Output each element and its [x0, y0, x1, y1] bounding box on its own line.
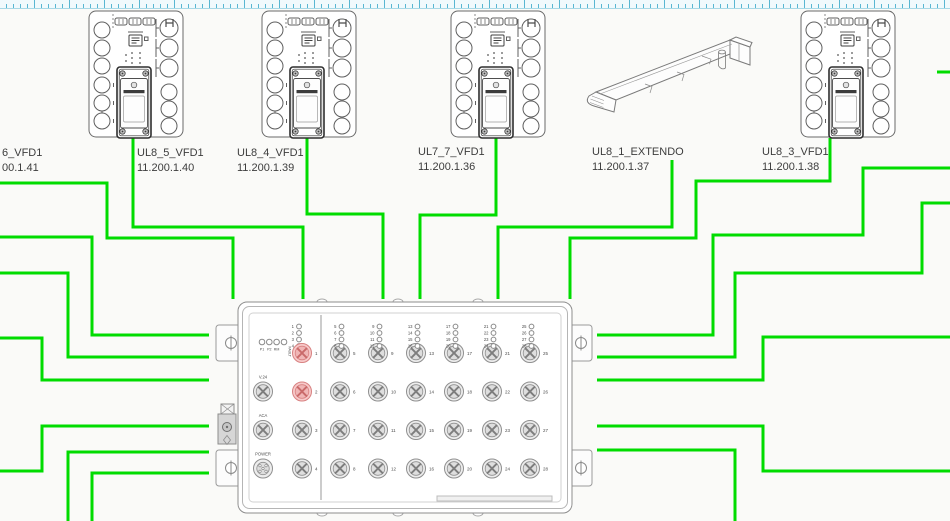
mount-hole [94, 22, 110, 38]
switch-port-18[interactable] [445, 382, 464, 401]
device-dev-ul7-7[interactable] [450, 10, 546, 147]
mount-hole [334, 84, 350, 100]
top-connector [841, 18, 853, 25]
device-ip: 11.200.1.36 [418, 160, 485, 175]
network-wire-8[interactable] [0, 338, 209, 380]
led-number: 12 [370, 344, 375, 349]
port-number: 15 [429, 428, 435, 433]
led-number: 11 [370, 337, 375, 342]
network-wire-16[interactable] [597, 450, 735, 521]
mount-hole [873, 118, 889, 134]
mount-hole [267, 40, 283, 56]
status-led-label: P1 [260, 348, 264, 352]
port-led [529, 344, 534, 349]
mount-hole [806, 113, 822, 129]
port-led [453, 324, 458, 329]
switch-port-12[interactable] [369, 459, 388, 478]
extendo-pin [719, 50, 726, 54]
side-port-label: V.24 [259, 375, 268, 380]
device-dev-ul8-5[interactable] [88, 10, 184, 147]
network-wire-9[interactable] [0, 426, 209, 471]
led-number: 23 [484, 337, 489, 342]
mount-hole [523, 101, 539, 117]
port-led [415, 337, 420, 342]
status-led-P2 [267, 339, 273, 345]
mount-hole [456, 58, 472, 74]
port-number: 12 [391, 466, 397, 471]
top-connector [491, 18, 503, 25]
switch-port-10[interactable] [369, 382, 388, 401]
device-dev-ul8-3[interactable] [800, 10, 896, 147]
device-ip: 11.200.1.40 [137, 161, 204, 176]
mount-hole [94, 40, 110, 56]
mount-hole [523, 118, 539, 134]
switch-port-20[interactable] [445, 459, 464, 478]
port-led [453, 344, 458, 349]
mount-hole [873, 101, 889, 117]
top-ruler [0, 0, 950, 9]
device-name: UL8_1_EXTENDO [592, 145, 684, 160]
device-name: UL8_4_VFD1 [237, 146, 304, 161]
switch-port-1[interactable] [293, 344, 312, 363]
led-number: 24 [484, 344, 489, 349]
device-ip: 11.200.1.38 [762, 160, 829, 175]
mount-hole [456, 77, 472, 93]
port-number: 16 [429, 466, 435, 471]
top-connector [288, 18, 300, 25]
led-number: 26 [522, 331, 527, 336]
port-led [415, 324, 420, 329]
mount-hole [94, 95, 110, 111]
port-number: 26 [543, 389, 549, 394]
switch-port-16[interactable] [407, 459, 426, 478]
switch-port-3[interactable] [293, 421, 312, 440]
top-connector [855, 18, 867, 25]
status-led-label: P2 [267, 348, 271, 352]
switch-port-22[interactable] [483, 382, 502, 401]
device-ip: 11.200.1.39 [237, 161, 304, 176]
module-label-bar [836, 90, 857, 93]
port-number: 17 [467, 351, 473, 356]
device-name: 6_VFD1 [2, 146, 42, 161]
port-led [491, 337, 496, 342]
top-connector [302, 18, 314, 25]
device-label-dev-ul8-3[interactable]: UL8_3_VFD111.200.1.38 [762, 145, 829, 175]
mount-hole [806, 95, 822, 111]
port-number: 28 [543, 466, 549, 471]
switch-port-7[interactable] [331, 421, 350, 440]
brand-logo-icon [131, 82, 137, 88]
network-wire-12[interactable] [597, 168, 950, 335]
port-number: 19 [467, 428, 473, 433]
label-strip [437, 496, 552, 501]
device-name: UL8_5_VFD1 [137, 146, 204, 161]
network-wire-2[interactable] [307, 138, 383, 299]
mount-hole [456, 95, 472, 111]
ruler-major-ticks [0, 0, 950, 8]
port-number: 23 [505, 428, 511, 433]
mount-hole [267, 22, 283, 38]
port-number: 13 [429, 351, 435, 356]
device-ip: 00.1.41 [2, 161, 42, 176]
device-name: UL8_3_VFD1 [762, 145, 829, 160]
module-label-bar [297, 90, 318, 93]
device-dev-ul8-4[interactable] [261, 10, 357, 147]
port-led [339, 337, 344, 342]
mount-hole [267, 77, 283, 93]
port-led [339, 344, 344, 349]
port-led [529, 337, 534, 342]
device-label-dev-cutoff[interactable]: 6_VFD100.1.41 [2, 146, 42, 176]
network-wire-11[interactable] [92, 473, 209, 521]
mount-hole [872, 39, 890, 57]
switch-port-15[interactable] [407, 421, 426, 440]
mount-hole [872, 19, 890, 37]
port-led [339, 324, 344, 329]
module-label-bar [124, 90, 145, 93]
port-led [453, 337, 458, 342]
mount-hole [522, 19, 540, 37]
mount-hole [160, 39, 178, 57]
mount-hole [333, 19, 351, 37]
port-number: 18 [467, 389, 473, 394]
device-label-dev-ul8-5[interactable]: UL8_5_VFD111.200.1.40 [137, 146, 204, 176]
switch-port-28[interactable] [521, 459, 540, 478]
port-led [491, 344, 496, 349]
led-number: 28 [522, 344, 527, 349]
mount-hole [806, 40, 822, 56]
led-number: 14 [408, 331, 413, 336]
led-number: 10 [370, 331, 375, 336]
status-led-FAULT [281, 339, 287, 345]
top-connector [129, 18, 141, 25]
port-led [377, 324, 382, 329]
mount-hole [333, 59, 351, 77]
port-number: 22 [505, 389, 511, 394]
network-wire-6[interactable] [0, 237, 209, 335]
mount-hole [806, 22, 822, 38]
top-connector [827, 18, 839, 25]
device-label-dev-ul7-7[interactable]: UL7_7_VFD111.200.1.36 [418, 145, 485, 175]
mount-hole [94, 113, 110, 129]
switch-port-26[interactable] [521, 382, 540, 401]
switch-port-8[interactable] [331, 459, 350, 478]
led-number: 17 [446, 324, 451, 329]
top-connector [505, 18, 517, 25]
port-led [377, 331, 382, 336]
diagram-canvas: 6_VFD100.1.41UL8_5_VFD111.200.1.40UL8_4_… [0, 0, 950, 521]
port-led [339, 331, 344, 336]
switch-port-24[interactable] [483, 459, 502, 478]
port-number: 11 [391, 428, 396, 433]
status-led-P1 [259, 339, 265, 345]
status-led-label: RM [274, 348, 280, 352]
extendo-top-face [596, 40, 750, 100]
mount-hole [522, 39, 540, 57]
switch-port-19[interactable] [445, 421, 464, 440]
mount-hole [333, 39, 351, 57]
mount-hole [806, 58, 822, 74]
port-led [297, 337, 302, 342]
side-port-label: ACA [259, 413, 268, 418]
device-label-dev-ul8-4[interactable]: UL8_4_VFD111.200.1.39 [237, 146, 304, 176]
port-number: 20 [467, 466, 473, 471]
led-number: 25 [522, 324, 527, 329]
port-led [491, 324, 496, 329]
switch-port-POWER[interactable] [254, 459, 273, 478]
port-number: 14 [429, 389, 435, 394]
top-connector [115, 18, 127, 25]
switch-port-2[interactable] [293, 382, 312, 401]
network-wire-10[interactable] [68, 452, 209, 521]
device-ethernet-switch[interactable]: P1P2RMFAULT12341234V.24ACAPOWER556677889… [212, 296, 596, 521]
mount-hole [806, 77, 822, 93]
status-led-RM [274, 339, 280, 345]
led-number: 16 [408, 344, 413, 349]
port-led [377, 344, 382, 349]
port-led [491, 331, 496, 336]
port-led [297, 324, 302, 329]
mount-hole [523, 84, 539, 100]
mount-hole [161, 101, 177, 117]
switch-port-4[interactable] [293, 459, 312, 478]
port-led [529, 331, 534, 336]
port-led [529, 324, 534, 329]
network-wire-7[interactable] [0, 273, 209, 357]
switch-port-6[interactable] [331, 382, 350, 401]
port-led [297, 331, 302, 336]
top-connector [477, 18, 489, 25]
device-ip: 11.200.1.37 [592, 160, 684, 175]
device-name: UL7_7_VFD1 [418, 145, 485, 160]
led-number: 20 [446, 344, 451, 349]
port-number: 10 [391, 389, 397, 394]
brand-logo-icon [843, 82, 849, 88]
device-dev-ul8-1[interactable] [582, 26, 760, 123]
side-port-label: POWER [255, 452, 271, 457]
mount-hole [334, 101, 350, 117]
switch-port-11[interactable] [369, 421, 388, 440]
port-number: 21 [505, 351, 511, 356]
mount-hole [522, 59, 540, 77]
led-number: 22 [484, 331, 489, 336]
mount-hole [267, 58, 283, 74]
switch-port-V.24[interactable] [254, 382, 273, 401]
brand-logo-icon [304, 82, 310, 88]
port-number: 27 [543, 428, 549, 433]
mount-hole [872, 59, 890, 77]
switch-port-ACA[interactable] [254, 421, 273, 440]
brand-logo-icon [493, 82, 499, 88]
port-led [453, 331, 458, 336]
network-wire-4[interactable] [498, 160, 672, 299]
led-number: 21 [484, 324, 489, 329]
module-label-bar [486, 90, 507, 93]
mount-hole [160, 59, 178, 77]
port-led [415, 331, 420, 336]
mount-hole [161, 118, 177, 134]
mount-hole [456, 22, 472, 38]
mount-hole [334, 118, 350, 134]
mount-hole [94, 77, 110, 93]
mount-hole [456, 40, 472, 56]
top-connector [316, 18, 328, 25]
led-number: 27 [522, 337, 527, 342]
switch-port-23[interactable] [483, 421, 502, 440]
mount-hole [161, 84, 177, 100]
led-number: 18 [446, 331, 451, 336]
led-number: 15 [408, 337, 413, 342]
port-led [377, 337, 382, 342]
mount-hole [873, 84, 889, 100]
network-wire-0[interactable] [0, 183, 233, 299]
switch-port-27[interactable] [521, 421, 540, 440]
mount-hole [267, 95, 283, 111]
mount-hole [94, 58, 110, 74]
port-led [415, 344, 420, 349]
device-label-dev-ul8-1[interactable]: UL8_1_EXTENDO11.200.1.37 [592, 145, 684, 175]
port-number: 25 [543, 351, 549, 356]
switch-port-14[interactable] [407, 382, 426, 401]
mount-hole [456, 113, 472, 129]
port-number: 24 [505, 466, 511, 471]
mount-hole [267, 113, 283, 129]
mount-hole [160, 19, 178, 37]
top-connector [143, 18, 155, 25]
led-number: 19 [446, 337, 451, 342]
led-number: 13 [408, 324, 413, 329]
